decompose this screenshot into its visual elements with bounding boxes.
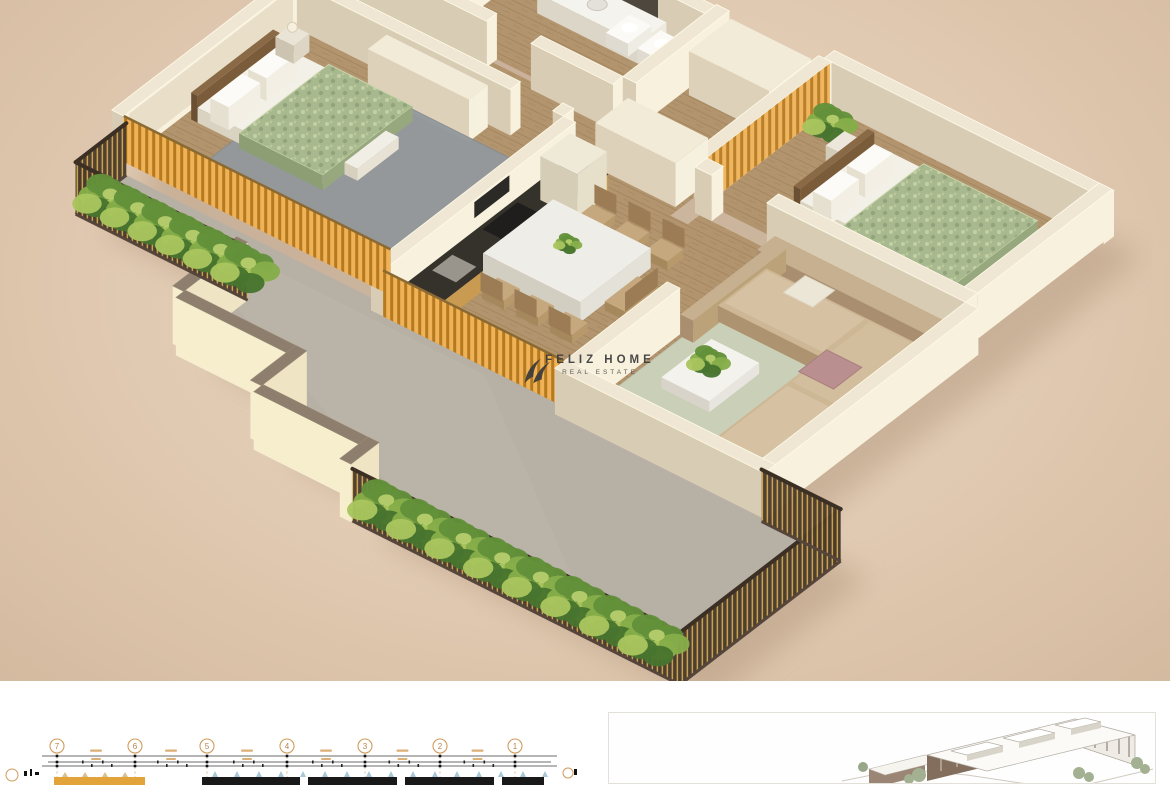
bottom-strip: 7654321: [0, 681, 1170, 785]
feliz-home-logo-icon: [520, 352, 554, 388]
building-render-card: [608, 712, 1156, 784]
page: FELIZ HOME REAL ESTATE 7654321: [0, 0, 1170, 785]
floorplan-render: FELIZ HOME REAL ESTATE: [0, 0, 1170, 681]
brand-watermark: FELIZ HOME REAL ESTATE: [520, 352, 680, 376]
svg-text:3: 3: [363, 742, 368, 751]
technical-elevation-drawing: 7654321: [2, 733, 598, 785]
svg-text:1: 1: [513, 742, 518, 751]
svg-text:5: 5: [205, 742, 210, 751]
svg-text:7: 7: [55, 742, 60, 751]
svg-text:4: 4: [285, 742, 290, 751]
building-exterior-render: [609, 713, 1155, 783]
svg-text:2: 2: [438, 742, 443, 751]
apartment-isometric-render: [0, 0, 1170, 681]
svg-text:6: 6: [133, 742, 138, 751]
